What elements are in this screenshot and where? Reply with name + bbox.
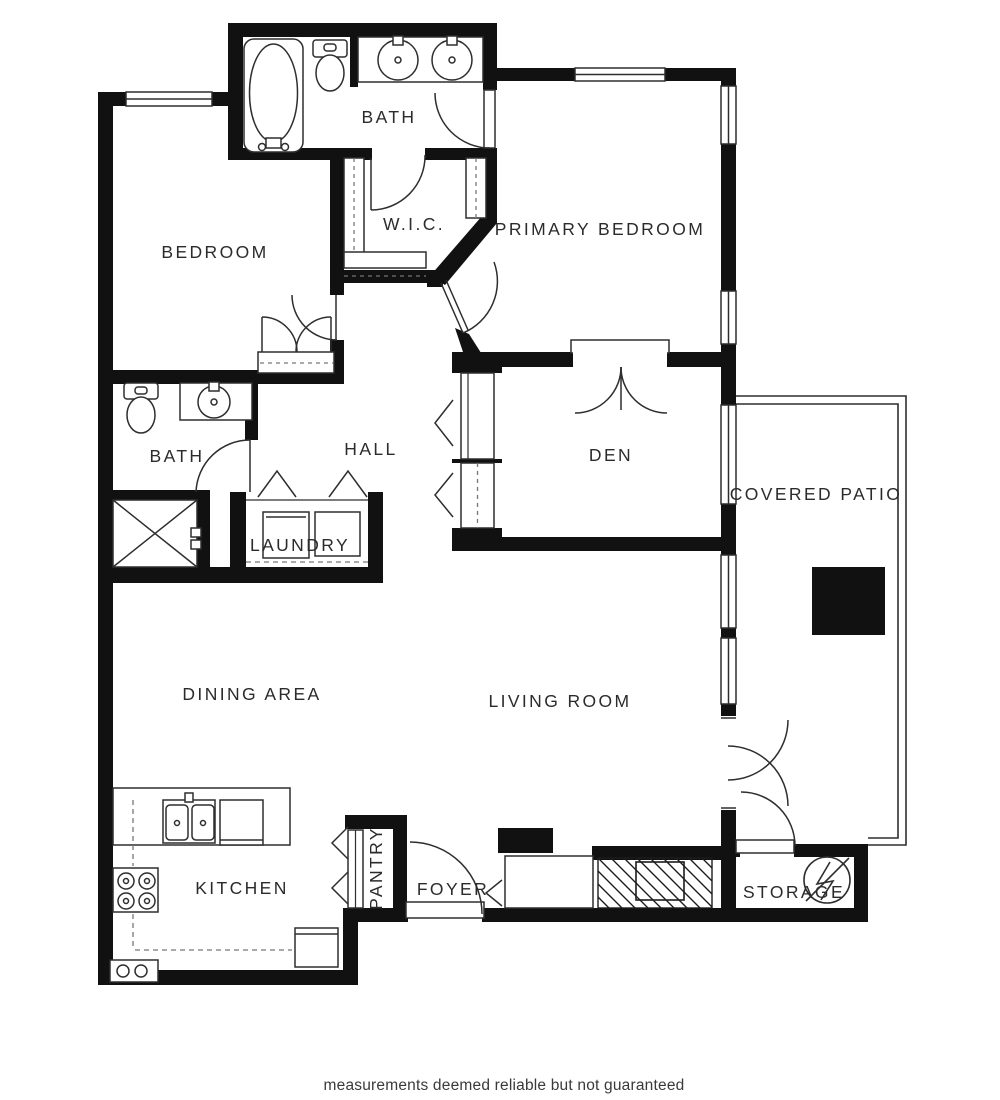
patio-french-doors [719, 716, 788, 810]
double-vanity [358, 36, 483, 82]
label-den: DEN [589, 445, 633, 465]
bath-top-door [435, 90, 495, 148]
laundry-bifold-doors [246, 471, 368, 500]
pantry-bifold-doors [332, 827, 363, 908]
living-patio-window-2 [721, 638, 736, 704]
kitchen-sink [163, 793, 215, 843]
primary-bedroom-right-window-2 [721, 291, 736, 344]
label-hall: HALL [344, 439, 397, 459]
primary-bedroom-right-window-1 [721, 86, 736, 144]
cased-opening-chevron-lower [435, 473, 453, 517]
storage-door [736, 792, 795, 853]
kitchen-counter [113, 788, 290, 845]
bath-partition [350, 37, 358, 87]
dishwasher [295, 928, 338, 967]
bathtub [244, 39, 303, 152]
den-double-doors [571, 340, 669, 413]
primary-bedroom-top-window [575, 68, 665, 81]
bedroom-closet-doors [262, 317, 331, 352]
label-bath-top: BATH [362, 107, 417, 127]
label-pantry: PANTRY [366, 826, 386, 910]
den-cased-openings [435, 373, 502, 528]
floor-plan-drawing: BATH W.I.C. BEDROOM PRIMARY BEDROOM DEN … [0, 0, 1000, 1100]
label-kitchen: KITCHEN [195, 878, 289, 898]
floor-plan-page: BATH W.I.C. BEDROOM PRIMARY BEDROOM DEN … [0, 0, 1000, 1100]
foyer-closet [505, 856, 593, 908]
bedroom-window [126, 92, 212, 106]
linen-closet [113, 500, 201, 567]
label-storage: STORAGE [743, 882, 845, 902]
label-bedroom: BEDROOM [161, 242, 268, 262]
label-foyer: FOYER [417, 879, 489, 899]
label-bath-lower: BATH [150, 446, 205, 466]
label-wic: W.I.C. [383, 214, 445, 234]
wic-door [371, 155, 425, 210]
toilet-lower [124, 383, 158, 433]
disclaimer-text: measurements deemed reliable but not gua… [324, 1077, 685, 1094]
bedroom-closet-shelf [258, 352, 334, 373]
label-dining-area: DINING AREA [182, 684, 321, 704]
living-patio-window-1 [721, 555, 736, 628]
label-covered-patio: COVERED PATIO [730, 484, 903, 504]
cased-opening-chevron-upper [435, 400, 453, 446]
fridge [220, 800, 263, 845]
toilet-top [313, 40, 347, 91]
bottom-wall-unit [110, 960, 158, 982]
label-laundry: LAUNDRY [250, 535, 350, 555]
patio-column [812, 567, 885, 635]
label-primary-bedroom: PRIMARY BEDROOM [495, 219, 705, 239]
vanity-lower [180, 382, 252, 420]
hatched-area [598, 858, 712, 908]
label-living-room: LIVING ROOM [488, 691, 631, 711]
stove [113, 868, 158, 912]
